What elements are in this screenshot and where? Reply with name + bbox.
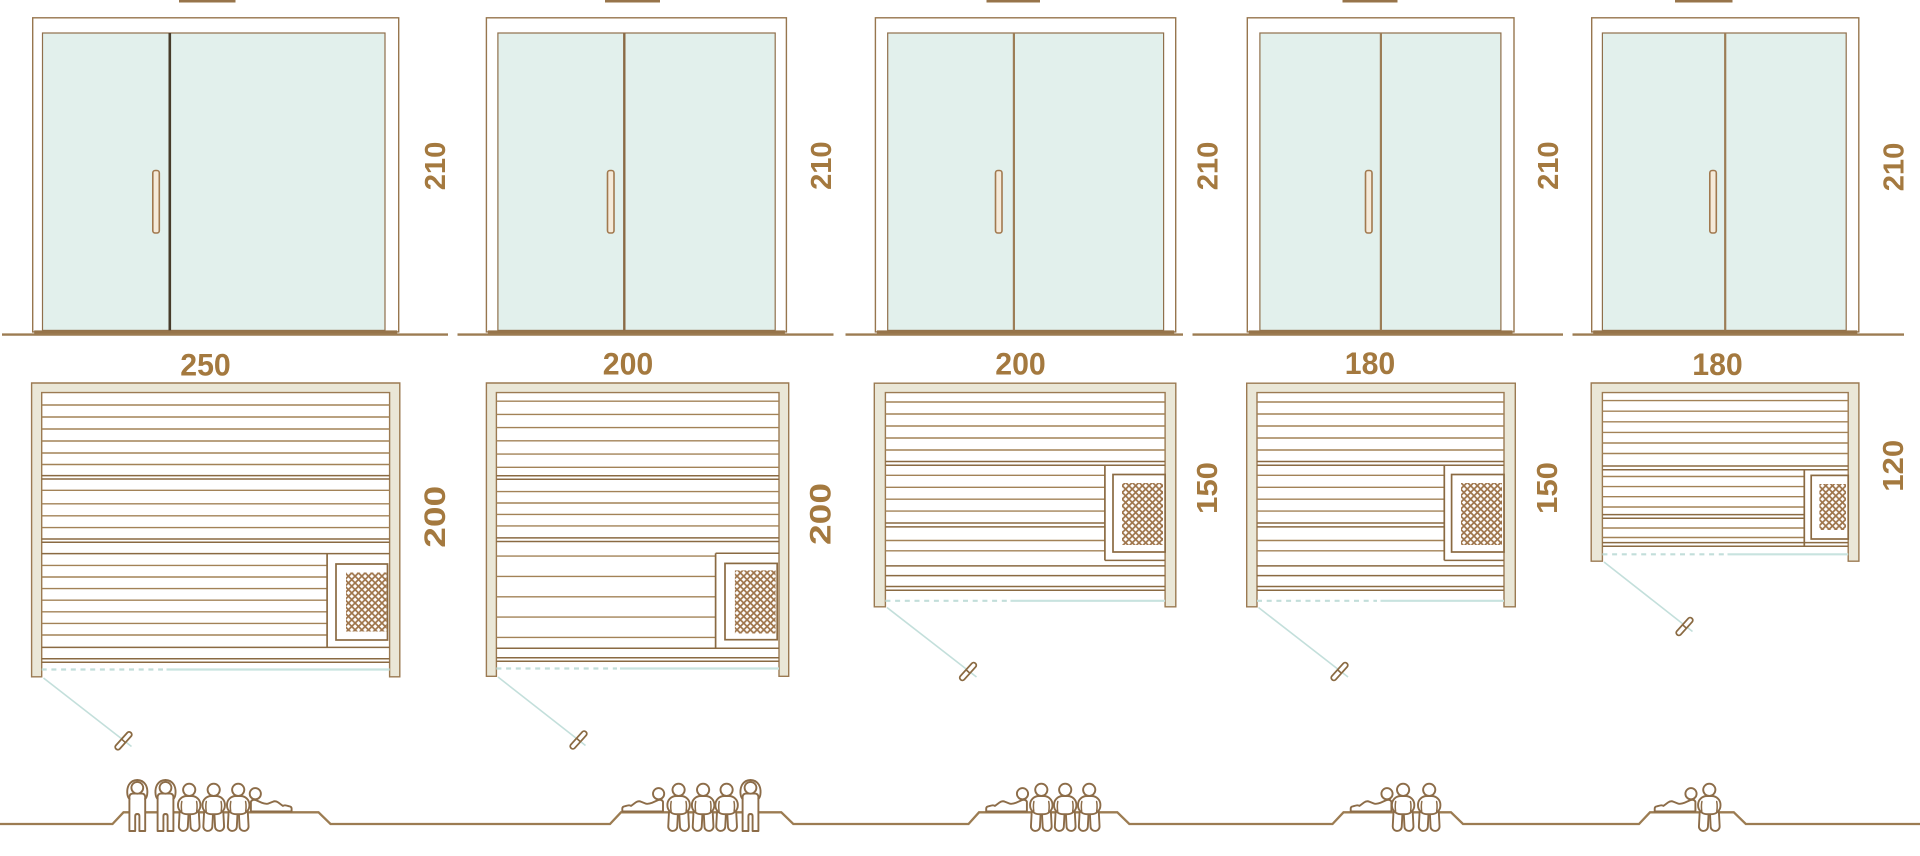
svg-text:210: 210 (1192, 142, 1224, 191)
svg-text:150: 150 (1192, 462, 1224, 514)
svg-text:210: 210 (1533, 141, 1565, 190)
svg-text:180: 180 (1345, 345, 1396, 381)
svg-text:120: 120 (1878, 440, 1910, 492)
svg-text:180: 180 (1692, 346, 1743, 382)
svg-text:210: 210 (420, 142, 452, 191)
svg-text:210: 210 (806, 141, 838, 190)
svg-text:200: 200 (995, 345, 1046, 381)
svg-text:150: 150 (1532, 462, 1564, 514)
svg-text:250: 250 (180, 346, 231, 382)
svg-text:210: 210 (1878, 143, 1910, 192)
svg-text:200: 200 (603, 345, 654, 381)
svg-text:200: 200 (805, 483, 838, 545)
svg-text:200: 200 (419, 486, 452, 548)
